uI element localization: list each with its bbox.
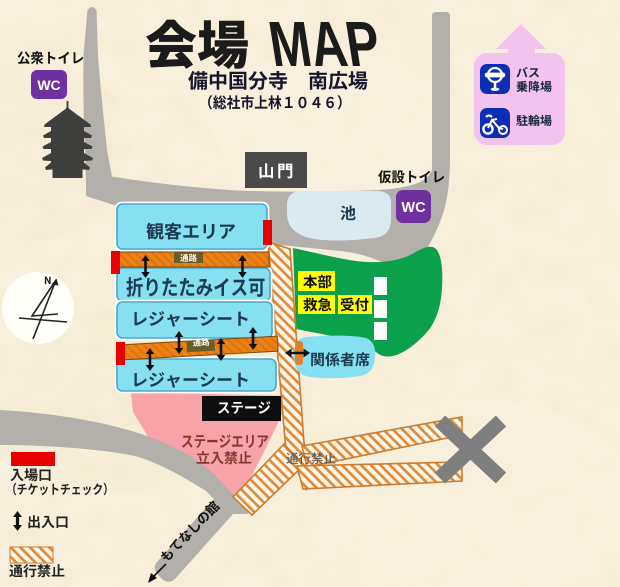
svg-text:WC: WC [37,77,60,93]
svg-text:WC: WC [401,200,426,216]
